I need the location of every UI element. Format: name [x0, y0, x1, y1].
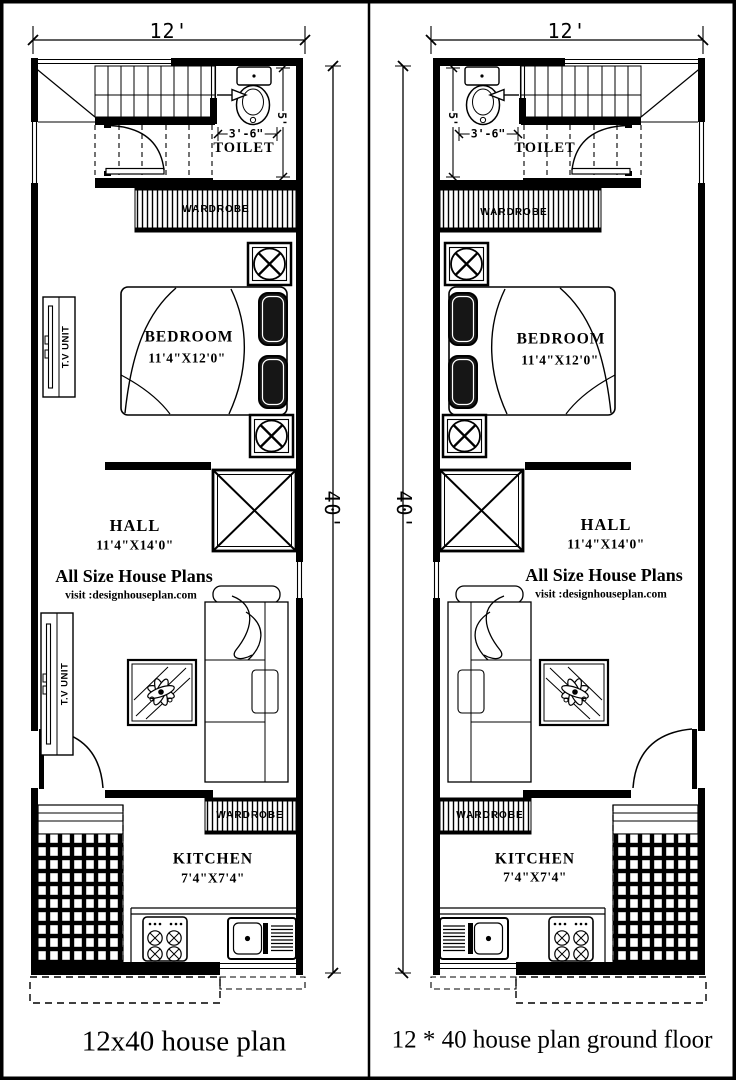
kitchen-label-right: KITCHEN [495, 851, 575, 867]
hall-label-right: HALL [581, 517, 632, 534]
tv-unit-label-left-2: T.V UNIT [60, 663, 70, 706]
dim-width-right: 12' [547, 21, 586, 41]
kitchen-size-left: 7'4"X7'4" [181, 871, 245, 885]
floor-plan-sheet: 12' 40' 5' 3'-6" TOILET WARDROBE BEDROOM… [0, 0, 736, 1080]
hall-size-left: 11'4"X14'0" [96, 538, 174, 552]
watermark-sub-left: visit :designhouseplan.com [65, 590, 197, 602]
bedroom-label-right: BEDROOM [517, 331, 606, 347]
watermark-sub-right: visit :designhouseplan.com [535, 589, 667, 601]
bedroom-size-left: 11'4"X12'0" [148, 351, 226, 365]
watermark-title-left: All Size House Plans [55, 567, 213, 585]
wardrobe-label-left-2: WARDROBE [216, 811, 283, 821]
caption-left: 12x40 house plan [82, 1028, 287, 1057]
dim-toilet-width-right: 3'-6" [470, 128, 507, 140]
caption-right: 12 * 40 house plan ground floor [392, 1028, 713, 1053]
watermark-title-right: All Size House Plans [525, 566, 683, 584]
hall-label-left: HALL [110, 518, 161, 535]
hall-size-right: 11'4"X14'0" [567, 537, 645, 551]
dim-toilet-width-left: 3'-6" [228, 128, 265, 140]
toilet-label-right: TOILET [514, 141, 575, 156]
dim-width-left: 12' [149, 21, 188, 41]
bedroom-label-left: BEDROOM [145, 329, 234, 345]
wardrobe-label-right-1: WARDROBE [480, 208, 547, 218]
dim-height-left: 40' [322, 490, 342, 529]
wardrobe-label-right-2: WARDROBE [456, 811, 523, 821]
dim-height-right: 40' [394, 490, 414, 529]
kitchen-label-left: KITCHEN [173, 851, 253, 867]
bedroom-size-right: 11'4"X12'0" [521, 353, 599, 367]
dim-toilet-depth-left: 5' [275, 111, 287, 127]
dim-toilet-depth-right: 5' [446, 111, 458, 127]
toilet-label-left: TOILET [213, 141, 274, 156]
tv-unit-label-left-1: T.V UNIT [61, 326, 71, 369]
kitchen-size-right: 7'4"X7'4" [503, 870, 567, 884]
wardrobe-label-left-1: WARDROBE [182, 205, 249, 215]
